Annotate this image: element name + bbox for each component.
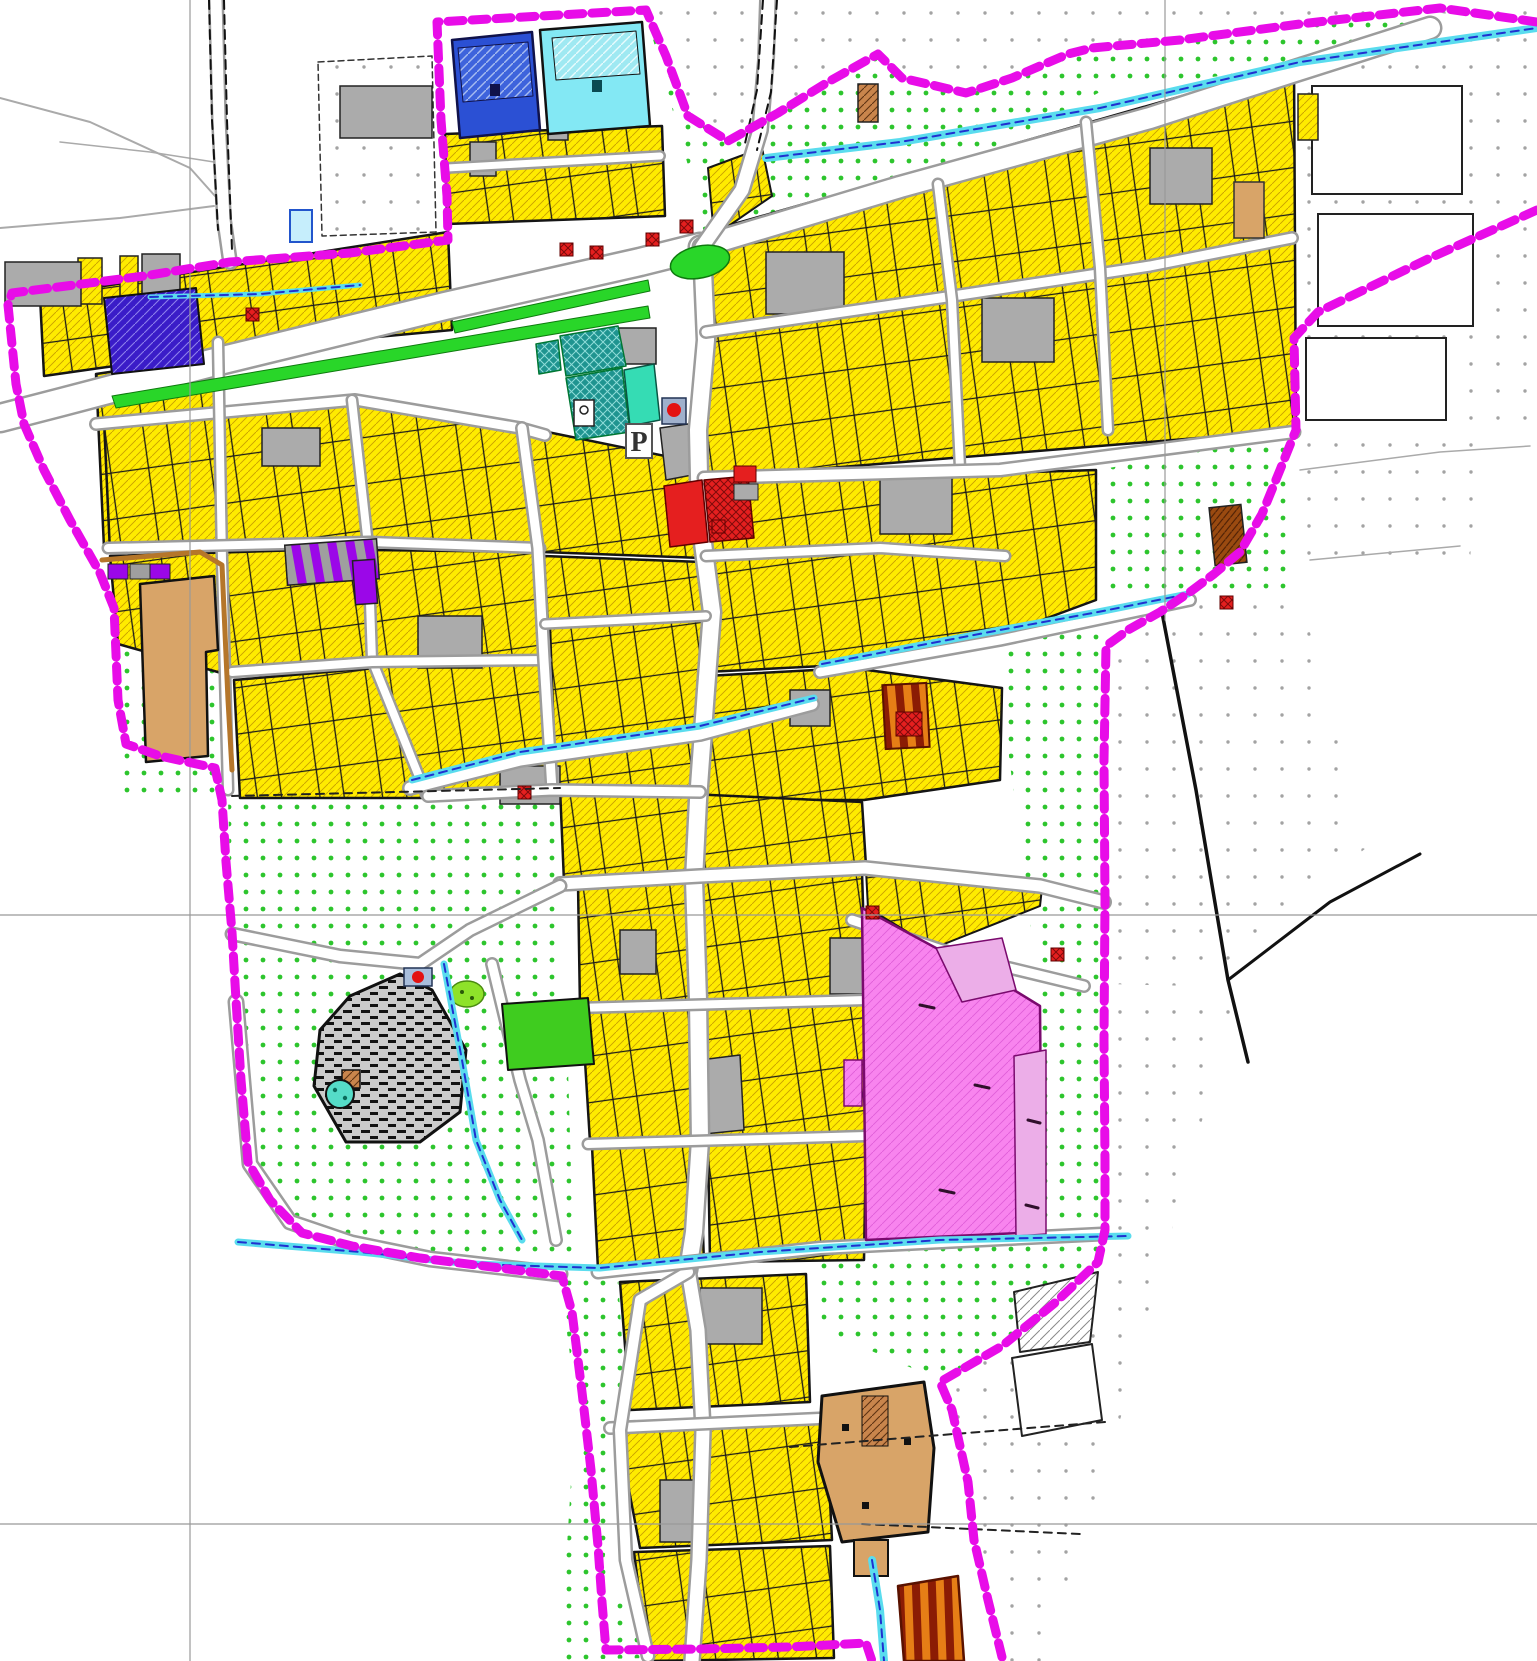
tan-hut-top — [858, 84, 878, 122]
gray-building-19 — [262, 428, 320, 466]
parcel-yellow-edge — [1298, 94, 1318, 140]
gray-building-14 — [830, 938, 864, 994]
market-strip-purple — [352, 559, 377, 604]
school-icon-cyan — [592, 80, 602, 92]
outside-parcel-tr-3 — [1306, 338, 1446, 420]
pool-teal-circle — [326, 1080, 354, 1108]
historic-south-hatch — [862, 1396, 888, 1446]
historic-tan-west — [140, 576, 218, 762]
trafo-9 — [1220, 596, 1233, 609]
mosque-building — [104, 288, 204, 374]
market-small-3 — [150, 564, 170, 579]
commerce-gray-small — [734, 484, 758, 500]
historic-ne-icon — [896, 712, 922, 736]
historic-striped-south — [898, 1576, 964, 1661]
civic-teal-4 — [536, 340, 561, 374]
block-south-w2 — [582, 1006, 700, 1142]
map-viewport[interactable]: P — [0, 0, 1537, 1661]
gray-building-9 — [1150, 148, 1212, 204]
trafo-7 — [866, 906, 879, 919]
outside-parcel-tr-1 — [1312, 86, 1462, 194]
trafo-4 — [680, 220, 693, 233]
pond — [290, 210, 312, 242]
industry-pink-sub-2 — [1014, 1050, 1046, 1236]
fuel-station-pin — [667, 403, 681, 417]
school-icon-blue — [490, 84, 500, 96]
park-lime-dot-2 — [470, 996, 474, 1000]
civic-dome-icon-dot — [580, 406, 588, 414]
trafo-1 — [560, 243, 573, 256]
parking-sign-label: P — [630, 427, 647, 458]
gray-building-10 — [880, 476, 952, 534]
historic-south-dot-3 — [862, 1502, 869, 1509]
trafo-5 — [712, 520, 725, 533]
tan-parcel-ne — [1234, 182, 1264, 238]
gray-building-8 — [982, 298, 1054, 362]
parcel-se-2 — [1012, 1344, 1102, 1436]
industry-pink-small — [844, 1060, 862, 1106]
park-lime-dot-1 — [460, 990, 464, 994]
market-small-1 — [108, 564, 128, 579]
gray-building-13 — [700, 1288, 762, 1344]
commerce-red-solid — [664, 480, 708, 547]
block-far-south-2 — [618, 1422, 832, 1548]
trafo-3 — [646, 233, 659, 246]
pool-dot-2 — [343, 1096, 347, 1100]
trafo-2 — [590, 246, 603, 259]
school-roof-hatch-cyan — [552, 31, 640, 80]
trafo-10 — [246, 308, 259, 321]
gray-building-7 — [766, 252, 844, 314]
block-center-c — [550, 620, 706, 792]
cemetery-gate-pin — [412, 971, 424, 983]
zoning-map-canvas: P — [0, 0, 1537, 1661]
outside-fields-right-pocket — [1298, 428, 1480, 572]
commerce-red-small — [734, 466, 756, 482]
market-small-2 — [130, 564, 150, 579]
outside-field-topleft — [318, 56, 436, 236]
gray-building-17 — [620, 930, 656, 974]
civic-teal-3 — [624, 364, 660, 426]
gray-building-3 — [340, 86, 432, 138]
pool-dot-1 — [333, 1088, 337, 1092]
park-green — [502, 998, 594, 1070]
trafo-8 — [1051, 948, 1064, 961]
historic-south-dot-2 — [904, 1438, 911, 1445]
block-east-b — [706, 668, 1002, 800]
historic-south-dot-1 — [842, 1424, 849, 1431]
park-lime-blob — [450, 981, 484, 1007]
